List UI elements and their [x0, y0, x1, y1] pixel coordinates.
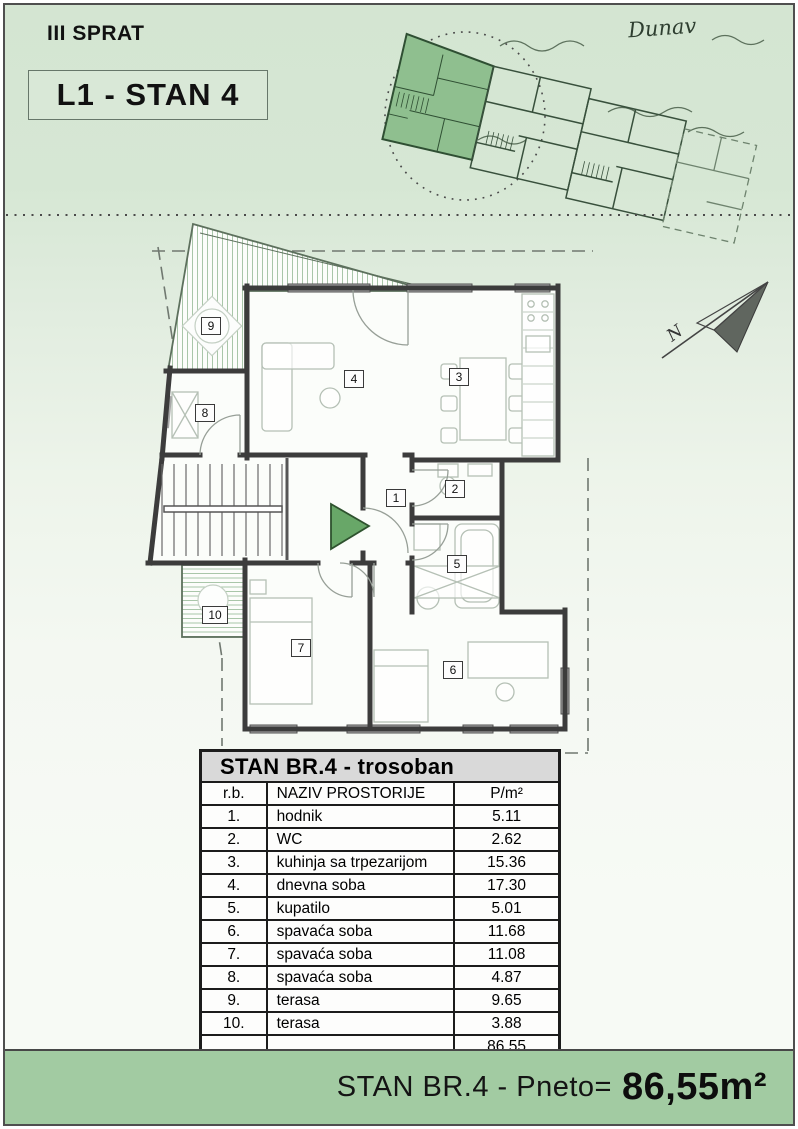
table-row: 1. hodnik 5.11 — [201, 805, 560, 828]
table-row: 7. spavaća soba 11.08 — [201, 943, 560, 966]
cell-name: kuhinja sa trpezarijom — [267, 851, 455, 874]
river-label: Dunav — [627, 14, 697, 43]
table-row: 3. kuhinja sa trpezarijom 15.36 — [201, 851, 560, 874]
cell-area: 11.08 — [454, 943, 559, 966]
cell-name: dnevna soba — [267, 874, 455, 897]
room-label-7: 7 — [291, 639, 311, 657]
cell-rb: 8. — [201, 966, 267, 989]
table-header-row: r.b. NAZIV PROSTORIJE P/m² — [201, 782, 560, 805]
main-floor-plan — [148, 224, 569, 733]
table-title: STAN BR.4 - trosoban — [201, 751, 560, 783]
table-row: 9. terasa 9.65 — [201, 989, 560, 1012]
cell-rb: 4. — [201, 874, 267, 897]
cell-name: hodnik — [267, 805, 455, 828]
unit-title: L1 - STAN 4 — [57, 77, 240, 113]
cell-rb: 9. — [201, 989, 267, 1012]
plan-sheet: N III SPRAT L1 - STAN 4 Dunav 1 2 3 4 5 … — [0, 0, 798, 1129]
footer-net-area: 86,55m² — [622, 1066, 767, 1109]
room-label-5: 5 — [447, 555, 467, 573]
cell-name: WC — [267, 828, 455, 851]
floor-title: III SPRAT — [47, 22, 144, 46]
room-label-4: 4 — [344, 370, 364, 388]
table-row: 4. dnevna soba 17.30 — [201, 874, 560, 897]
cell-area: 4.87 — [454, 966, 559, 989]
room-label-8: 8 — [195, 404, 215, 422]
cell-name: kupatilo — [267, 897, 455, 920]
room-schedule-table: STAN BR.4 - trosoban r.b. NAZIV PROSTORI… — [199, 749, 561, 1060]
table-row: 2. WC 2.62 — [201, 828, 560, 851]
cell-rb: 6. — [201, 920, 267, 943]
cell-rb: 5. — [201, 897, 267, 920]
cell-area: 2.62 — [454, 828, 559, 851]
cell-rb: 2. — [201, 828, 267, 851]
cell-area: 15.36 — [454, 851, 559, 874]
cell-name: spavaća soba — [267, 966, 455, 989]
cell-rb: 1. — [201, 805, 267, 828]
cell-name: terasa — [267, 989, 455, 1012]
cell-name: spavaća soba — [267, 943, 455, 966]
col-header-name: NAZIV PROSTORIJE — [267, 782, 455, 805]
cell-area: 9.65 — [454, 989, 559, 1012]
cell-area: 5.01 — [454, 897, 559, 920]
room-label-10: 10 — [202, 606, 228, 624]
cell-rb: 3. — [201, 851, 267, 874]
room-label-3: 3 — [449, 368, 469, 386]
cell-rb: 10. — [201, 1012, 267, 1035]
cell-area: 17.30 — [454, 874, 559, 897]
overview-building — [377, 34, 763, 243]
cell-name: spavaća soba — [267, 920, 455, 943]
river-waves-icon — [478, 36, 764, 145]
cell-name: terasa — [267, 1012, 455, 1035]
footer-label: STAN BR.4 - Pneto= — [337, 1071, 612, 1104]
room-label-1: 1 — [386, 489, 406, 507]
table-row: 8. spavaća soba 4.87 — [201, 966, 560, 989]
table-row: 10. terasa 3.88 — [201, 1012, 560, 1035]
table-title-row: STAN BR.4 - trosoban — [201, 751, 560, 783]
table-body: 1. hodnik 5.11 2. WC 2.62 3. kuhinja sa … — [201, 805, 560, 1035]
north-arrow-icon: N — [662, 282, 768, 358]
cell-area: 5.11 — [454, 805, 559, 828]
col-header-rb: r.b. — [201, 782, 267, 805]
room-label-2: 2 — [445, 480, 465, 498]
footer-summary-bar: STAN BR.4 - Pneto= 86,55m² — [5, 1049, 793, 1124]
col-header-area: P/m² — [454, 782, 559, 805]
room-label-9: 9 — [201, 317, 221, 335]
unit-title-box: L1 - STAN 4 — [28, 70, 268, 120]
cell-area: 3.88 — [454, 1012, 559, 1035]
table-row: 6. spavaća soba 11.68 — [201, 920, 560, 943]
cell-rb: 7. — [201, 943, 267, 966]
room-label-6: 6 — [443, 661, 463, 679]
terrace-10 — [182, 565, 245, 637]
cell-area: 11.68 — [454, 920, 559, 943]
table-row: 5. kupatilo 5.01 — [201, 897, 560, 920]
overview-mini-plan — [377, 32, 764, 243]
